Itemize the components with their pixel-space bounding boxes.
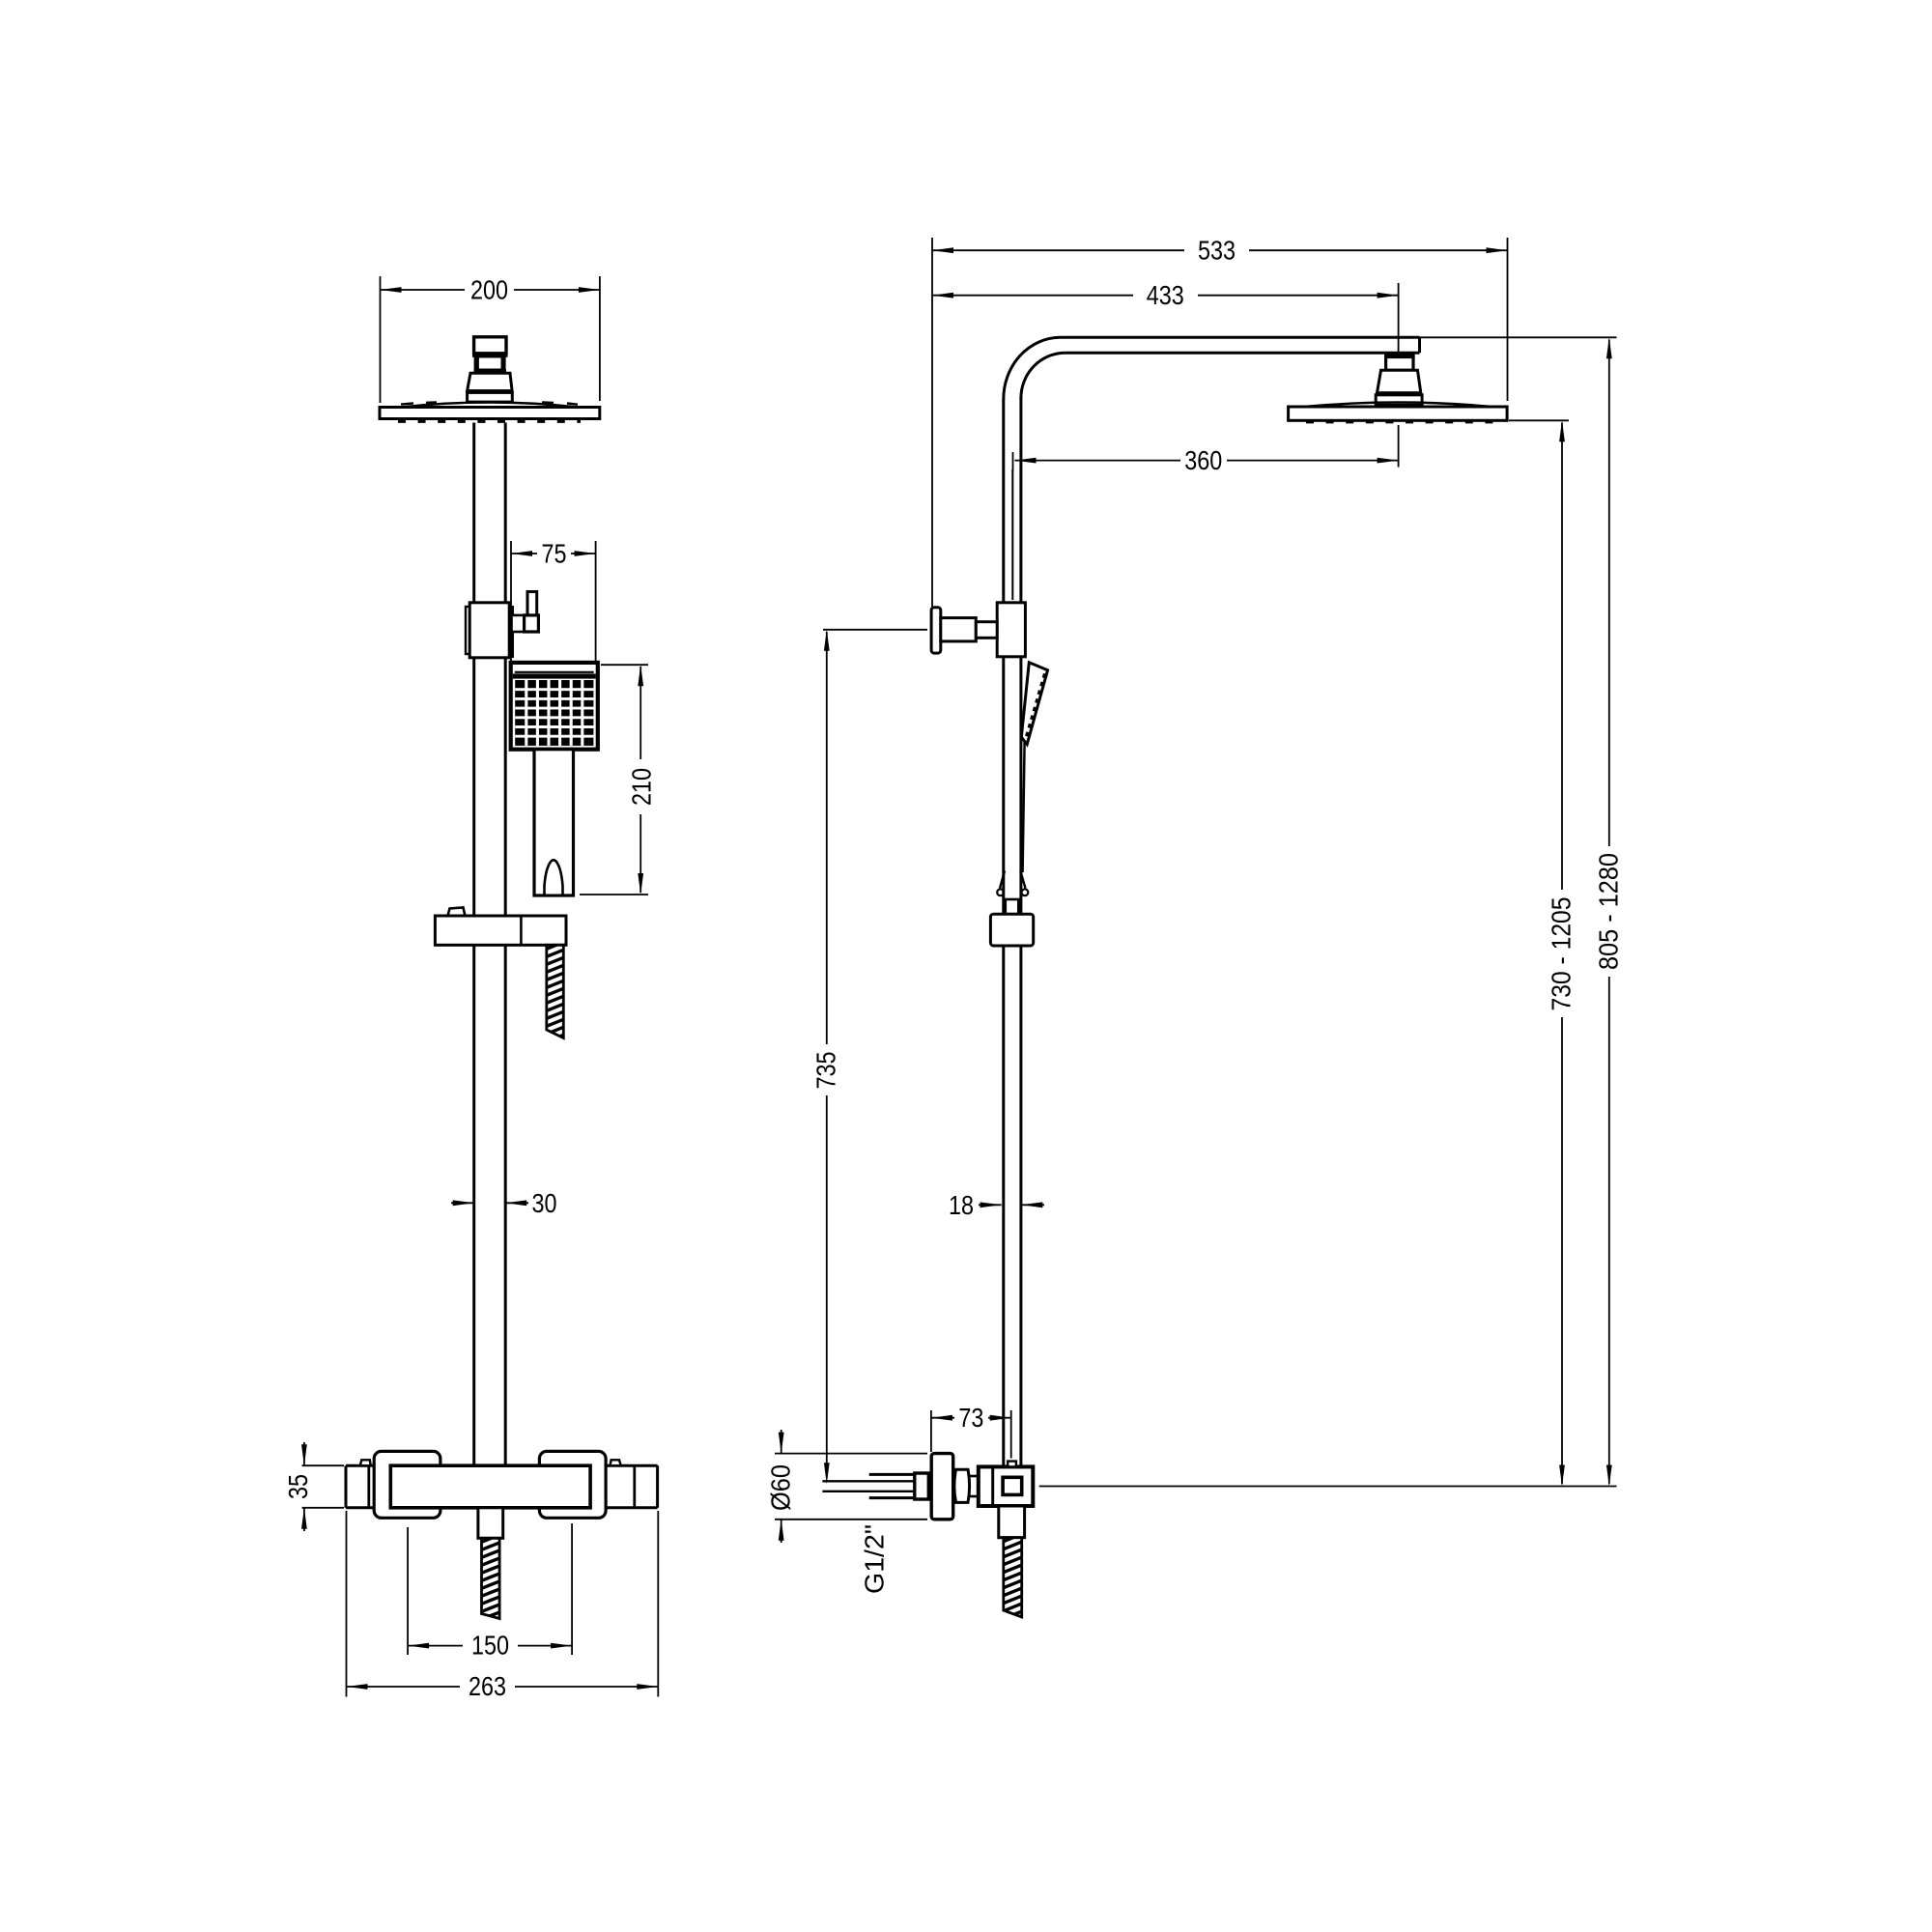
svg-text:73: 73 [958, 1403, 983, 1433]
svg-text:G1/2": G1/2" [860, 1524, 890, 1594]
svg-text:805 - 1280: 805 - 1280 [1594, 853, 1624, 970]
svg-text:75: 75 [542, 539, 567, 569]
svg-text:Ø60: Ø60 [766, 1464, 796, 1511]
svg-text:18: 18 [949, 1190, 974, 1220]
svg-text:730 - 1205: 730 - 1205 [1546, 897, 1576, 1011]
svg-text:30: 30 [532, 1188, 557, 1218]
svg-text:35: 35 [283, 1474, 313, 1499]
svg-text:735: 735 [811, 1052, 841, 1090]
svg-text:150: 150 [471, 1631, 509, 1661]
svg-text:533: 533 [1198, 236, 1236, 266]
svg-text:263: 263 [469, 1671, 506, 1701]
svg-text:210: 210 [626, 768, 656, 806]
svg-text:200: 200 [470, 275, 508, 305]
svg-text:360: 360 [1184, 445, 1222, 475]
svg-text:433: 433 [1147, 280, 1184, 310]
